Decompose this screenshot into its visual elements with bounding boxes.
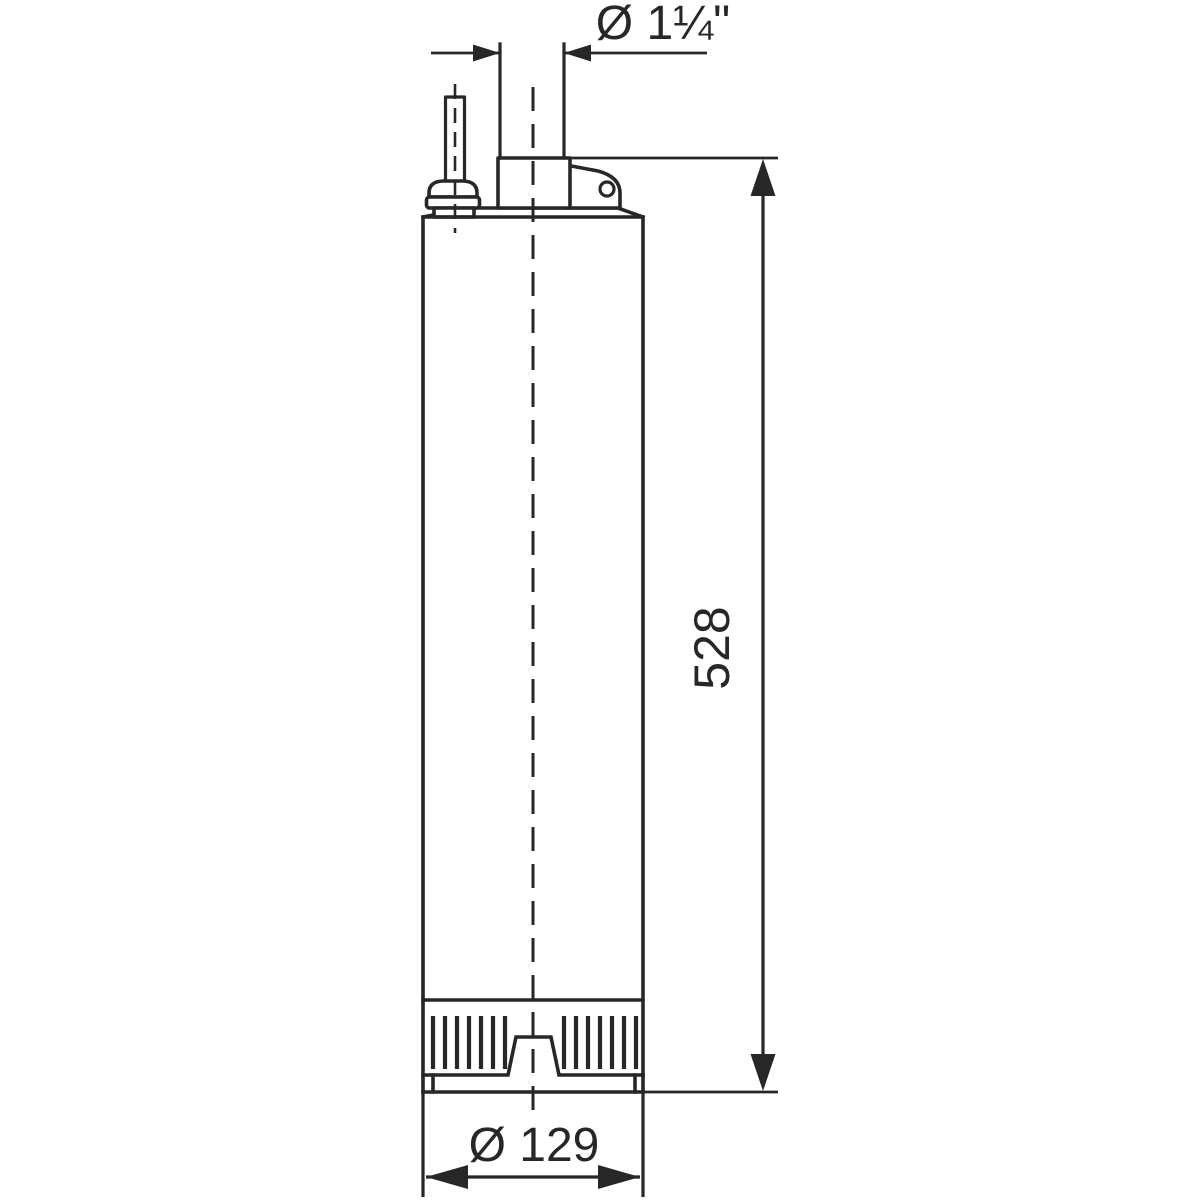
outlet-dim-label: Ø 1¼" bbox=[596, 0, 730, 50]
height-dim-arrow-up bbox=[751, 159, 776, 196]
outlet-dim-arrow-right bbox=[564, 45, 591, 62]
gland-cap-dome bbox=[429, 181, 477, 197]
bracket-hole-icon bbox=[600, 182, 614, 196]
height-dim-label: 528 bbox=[684, 606, 740, 689]
technical-drawing-page: Ø 1¼" 528 Ø 129 bbox=[0, 0, 1200, 1200]
cable-gland bbox=[427, 84, 480, 233]
diameter-dim-arrow-right bbox=[598, 1165, 640, 1189]
height-dim-arrow-down bbox=[751, 1054, 776, 1091]
dimension-outlet: Ø 1¼" bbox=[431, 0, 730, 62]
outlet-dim-arrow-left bbox=[473, 45, 500, 62]
submersible-pump-dimensional-drawing: Ø 1¼" 528 Ø 129 bbox=[0, 0, 1200, 1200]
pump-outline bbox=[423, 44, 643, 1116]
diameter-dim-label: Ø 129 bbox=[469, 1119, 600, 1172]
dimension-height: 528 bbox=[570, 158, 778, 1092]
diameter-dim-arrow-left bbox=[426, 1165, 468, 1189]
